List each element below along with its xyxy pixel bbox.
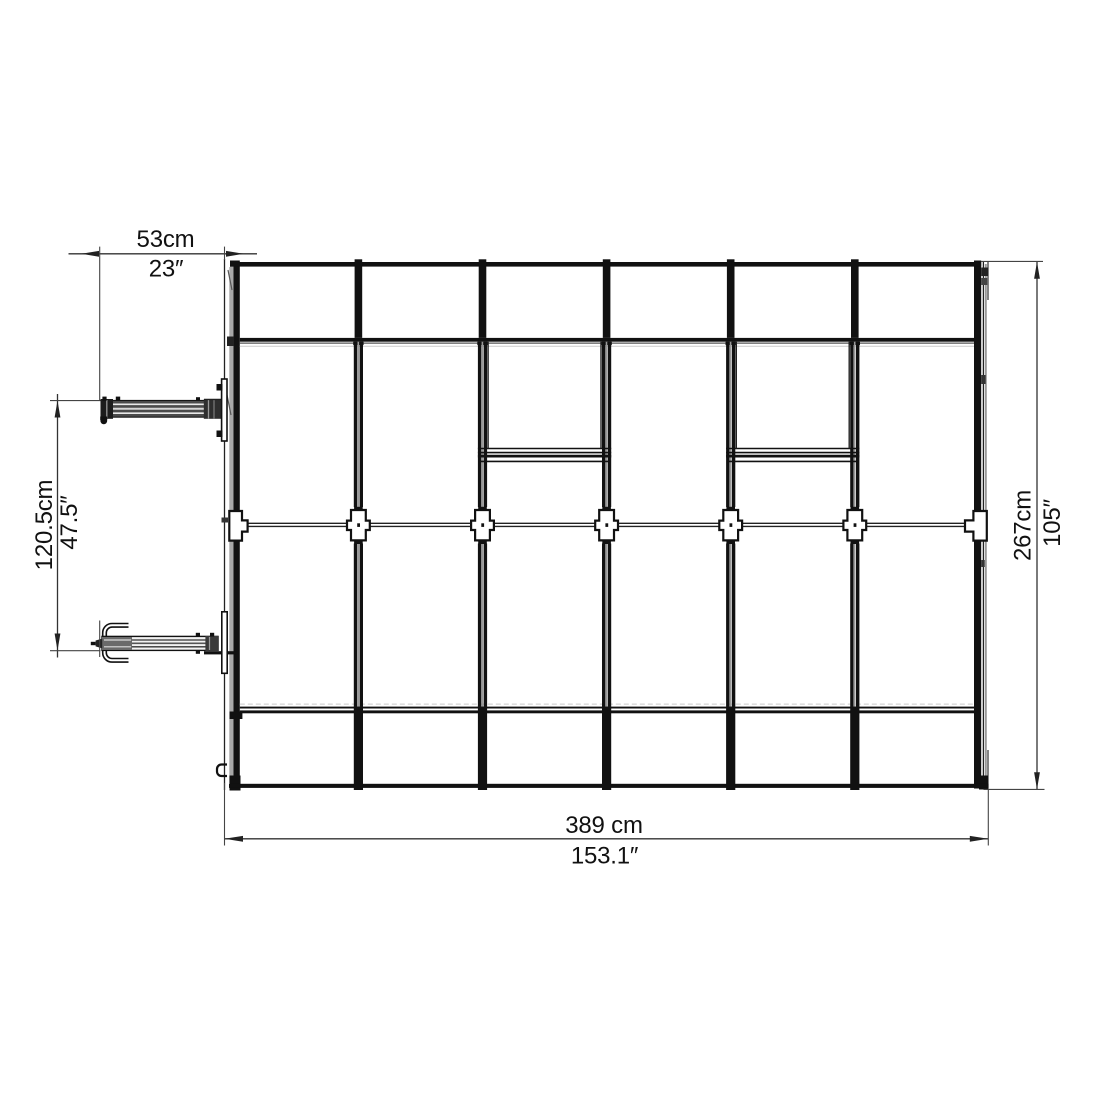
svg-text:53cm: 53cm: [137, 226, 195, 253]
svg-text:153.1″: 153.1″: [571, 843, 639, 870]
svg-text:389 cm: 389 cm: [565, 812, 643, 839]
svg-text:120.5cm: 120.5cm: [31, 480, 58, 571]
svg-text:105″: 105″: [1039, 498, 1066, 546]
svg-text:47.5″: 47.5″: [56, 495, 83, 550]
svg-text:267cm: 267cm: [1010, 490, 1037, 561]
svg-text:23″: 23″: [149, 256, 184, 283]
